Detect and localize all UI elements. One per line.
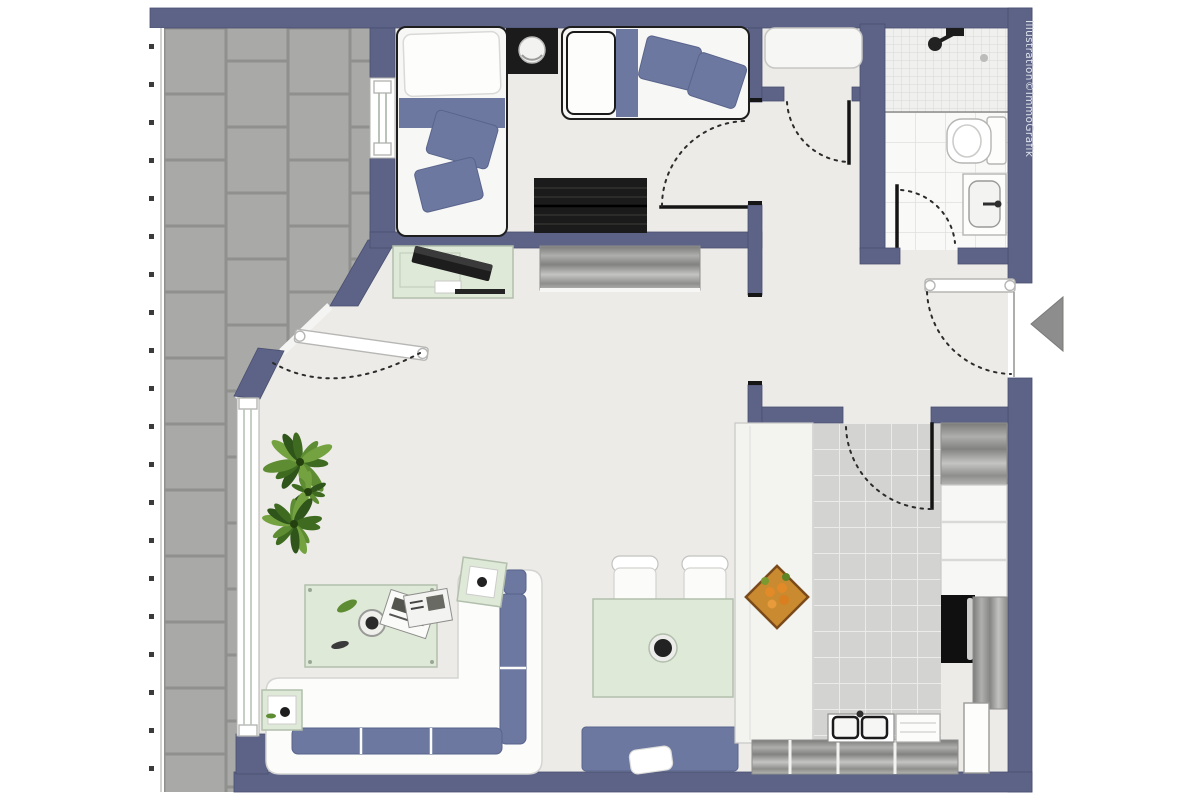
washbasin-icon [963, 174, 1006, 235]
jamb-hall-opening-top [748, 293, 762, 297]
desk-with-laptop [393, 246, 513, 298]
wall-right-lower [1008, 378, 1032, 792]
oven-handle [967, 598, 973, 660]
balcony-railing [146, 28, 164, 792]
watermark-text: Illustration©ImmoGrafik [1023, 20, 1035, 158]
plant-center [296, 458, 304, 466]
sideboard-edge [540, 288, 700, 292]
shower-floor [885, 28, 1008, 112]
wall-kitchen-stub [748, 385, 762, 423]
wall-bathroom-south-left [860, 248, 900, 264]
bed-pillow [567, 32, 615, 114]
sideboard [540, 246, 700, 290]
wall-bathroom-south-right [958, 248, 1008, 264]
wall-bathroom-west [860, 24, 885, 250]
kitchen-floor [813, 423, 941, 743]
single-bed-vertical [397, 27, 507, 236]
jamb-bedroom-top [748, 98, 762, 102]
kitchen-cabinet-top [941, 423, 1007, 485]
wall-hall-stub-left [762, 87, 784, 101]
kitchen-cabinet-row [752, 740, 958, 774]
entrance-arrow-icon [1031, 297, 1063, 351]
single-bed-horizontal [562, 27, 749, 119]
hall-closet [765, 28, 862, 68]
wall-window-corner-block [236, 734, 268, 774]
sofa-corner-table [457, 557, 507, 607]
bench-pillow [629, 745, 674, 775]
plant-center [290, 520, 298, 528]
jamb-hall-opening-bottom [748, 381, 762, 385]
sofa-cushion [292, 728, 502, 754]
fridge [964, 703, 989, 773]
shower-drain [980, 54, 988, 62]
wall-bedroom-east-lower [748, 205, 762, 295]
sofa-cushion [504, 570, 526, 594]
wardrobe [534, 178, 647, 233]
sofa-side-table [262, 690, 302, 730]
kitchen-drawers [896, 714, 940, 742]
wall-kitchen-north-left [762, 407, 843, 423]
bench [582, 727, 738, 775]
living-room-window [237, 398, 259, 736]
cup-icon [280, 707, 290, 717]
floor-plan-page: Illustration©ImmoGrafik [0, 0, 1200, 800]
toilet-icon [947, 117, 1006, 164]
wall-top [150, 8, 1032, 28]
nightstand [506, 28, 558, 74]
wall-kitchen-north-right [931, 407, 1008, 423]
bowl-icon [654, 639, 672, 657]
coffee-table [305, 585, 452, 667]
bedroom-balcony-window [370, 78, 395, 158]
kitchen-shelves [941, 485, 1007, 597]
wall-bedroom-east-upper [748, 28, 762, 102]
wall-bottom [234, 772, 1032, 792]
kitchen-sink-icon [828, 711, 894, 743]
bed-blanket-band [616, 29, 638, 117]
keyboard [455, 289, 505, 294]
jamb-bedroom-bottom [748, 201, 762, 205]
bed-pillow [403, 31, 501, 96]
floor-plan: Illustration©ImmoGrafik [0, 0, 1200, 800]
kitchen-cabinet-east [973, 597, 1007, 709]
